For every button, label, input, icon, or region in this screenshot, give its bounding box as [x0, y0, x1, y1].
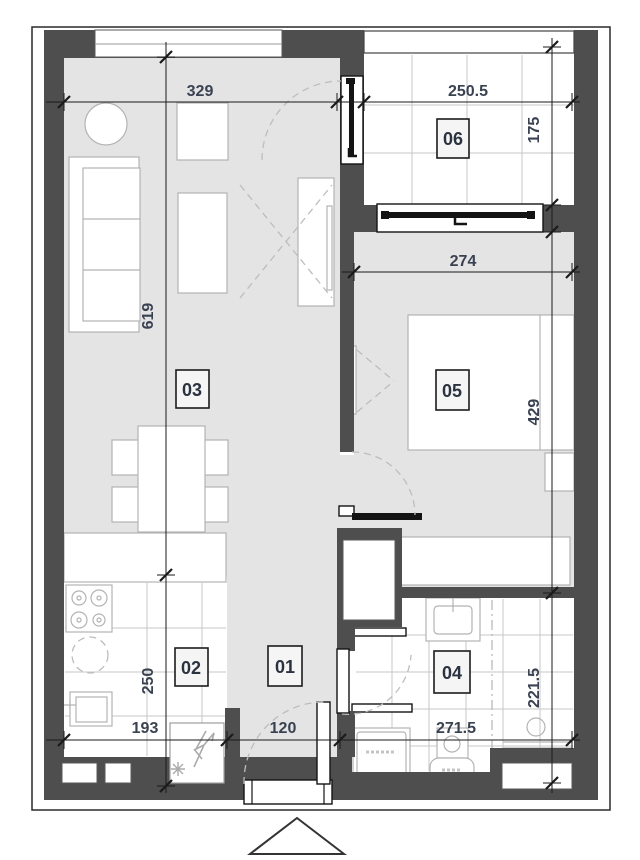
round-side-table	[85, 103, 127, 145]
floor-plan-svg: 329 250.5 274 193 120 271.5 619 250 175 …	[0, 0, 640, 860]
terrace-sliding-door-end-left	[381, 211, 389, 219]
dim-label-terrace-width: 250.5	[448, 83, 488, 100]
bedroom-door-pocket	[339, 506, 354, 516]
dim-label-bedroom-length: 429	[526, 399, 543, 426]
electrical-panel-star	[171, 762, 185, 776]
shelf	[354, 628, 406, 636]
radiator	[352, 704, 412, 712]
tv-bench	[177, 103, 228, 160]
wall-left	[44, 30, 64, 800]
dim-label-kitchen-width: 193	[132, 720, 159, 737]
wall-right	[574, 30, 598, 800]
room-label-02: 02	[181, 658, 201, 678]
terrace-railing	[364, 31, 574, 53]
wall-bedroom-divider	[340, 225, 354, 452]
sofa-cushions	[83, 168, 140, 321]
niche-kitchen-2	[105, 763, 131, 783]
dim-label-entry-width: 120	[270, 720, 297, 737]
terrace-door-stop-top	[346, 78, 355, 84]
room-label-04: 04	[442, 663, 462, 683]
terrace-door-leaf	[349, 82, 354, 156]
wardrobe-bedroom	[400, 537, 570, 585]
dining-table	[138, 426, 205, 532]
terrace-sliding-door-end-right	[527, 211, 535, 219]
dim-label-bathroom-depth: 221.5	[526, 668, 543, 708]
terrace-sliding-door-rail	[381, 212, 535, 218]
room-label-05: 05	[442, 381, 462, 401]
dim-label-kitchen-length: 250	[140, 668, 157, 695]
coffee-table	[178, 193, 227, 293]
dim-label-terrace-depth: 175	[526, 117, 543, 144]
dim-label-living-length: 619	[140, 303, 157, 330]
room-label-01: 01	[275, 657, 295, 677]
nightstand	[545, 453, 574, 491]
dim-label-bedroom-width: 274	[450, 253, 477, 270]
room-label-06: 06	[443, 129, 463, 149]
tv-panel	[327, 206, 332, 290]
bed	[408, 315, 574, 450]
kitchen-counter	[64, 533, 226, 582]
bedroom-sliding-door	[352, 513, 422, 520]
entrance-triangle	[250, 818, 344, 854]
dim-label-bathroom-width: 271.5	[436, 720, 476, 737]
niche-bathroom	[502, 763, 572, 789]
bathroom-door-leaf	[337, 649, 349, 713]
wall-terrace-bottom-left	[348, 205, 377, 232]
entrance-door-leaf	[317, 702, 330, 784]
room-label-03: 03	[182, 380, 202, 400]
dim-label-living-width: 329	[187, 83, 214, 100]
niche-kitchen-1	[62, 763, 97, 783]
shaft	[343, 540, 395, 620]
